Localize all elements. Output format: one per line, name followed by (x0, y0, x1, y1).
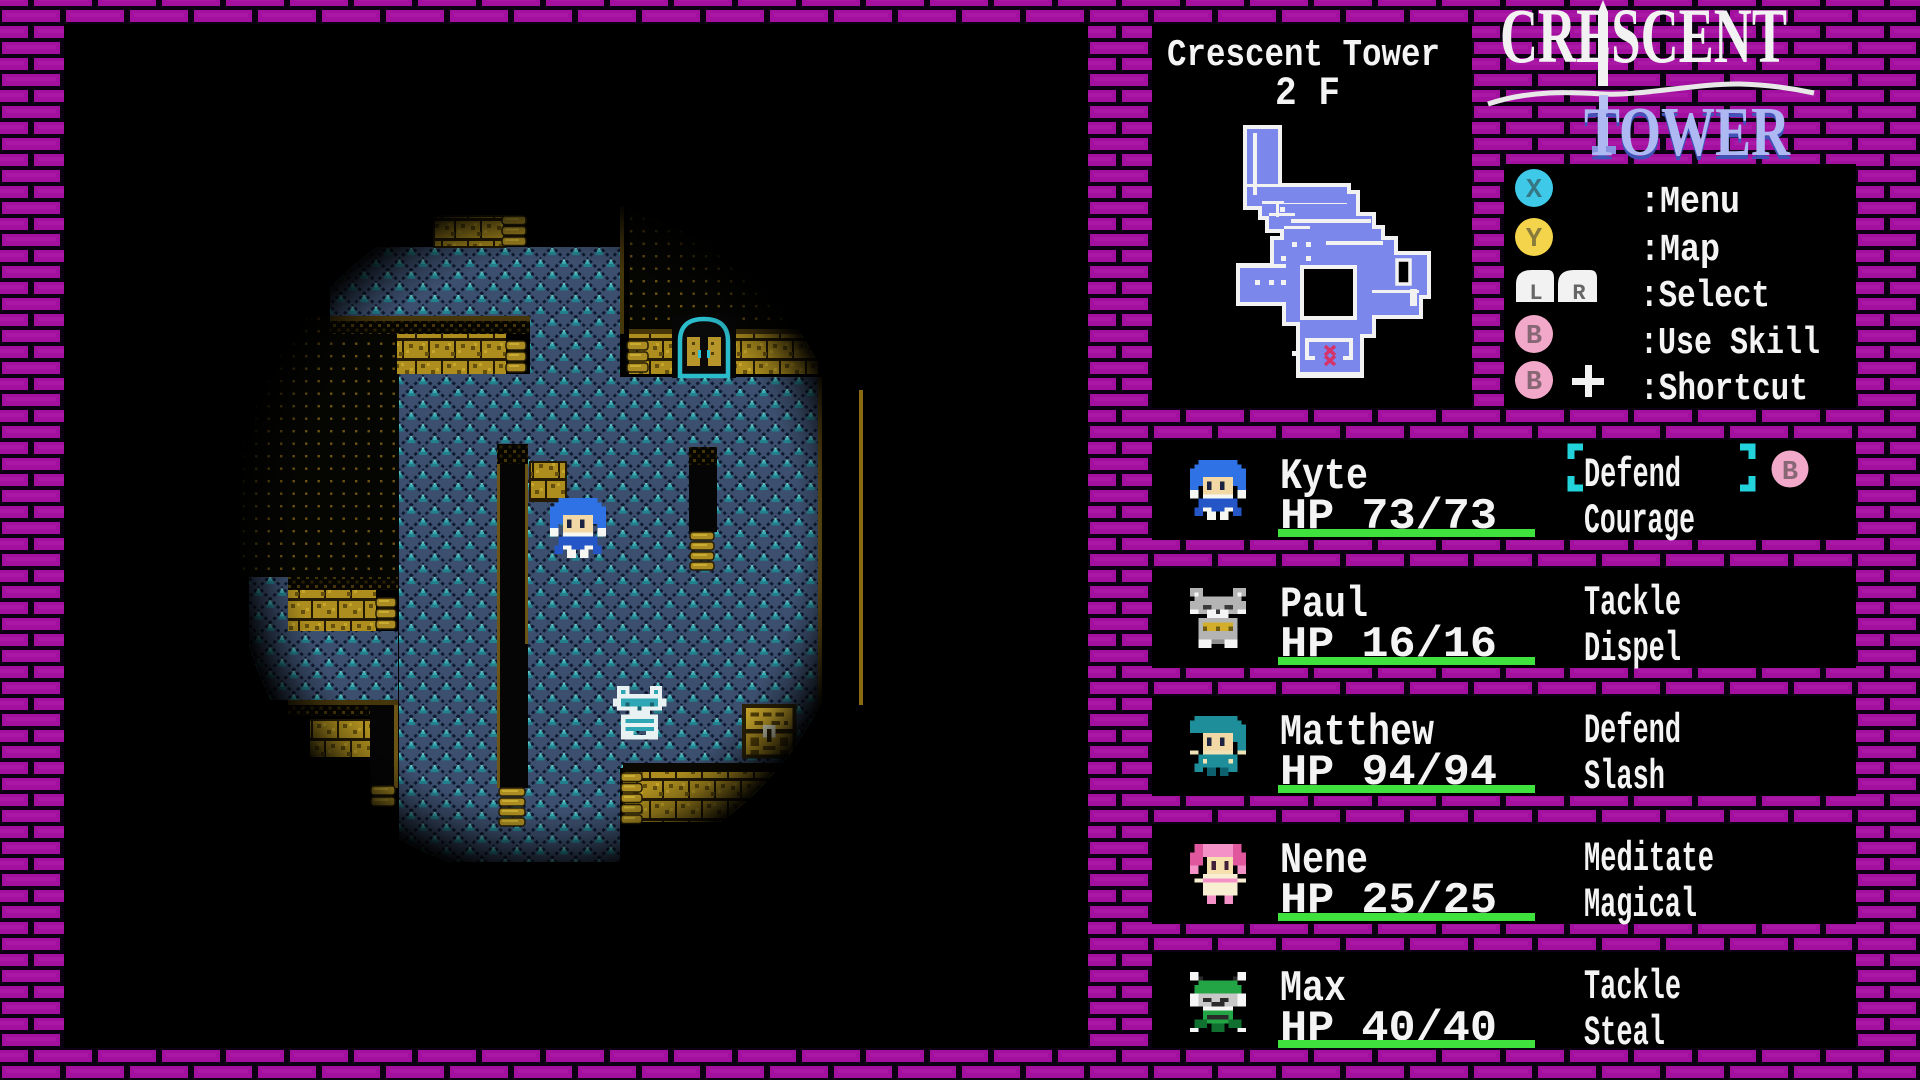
svg-text:Crescent Tower: Crescent Tower (1167, 34, 1440, 77)
svg-text::Map: :Map (1640, 229, 1720, 272)
svg-text:B: B (1526, 322, 1542, 352)
svg-text:Defend: Defend (1584, 451, 1681, 499)
svg-text:Magical: Magical (1584, 881, 1697, 929)
svg-text:CRESCENT: CRESCENT (1500, 0, 1787, 79)
svg-text::Menu: :Menu (1640, 181, 1740, 224)
svg-text::Shortcut: :Shortcut (1640, 368, 1808, 411)
svg-text:B: B (1526, 368, 1542, 398)
svg-text:Tackle: Tackle (1584, 579, 1681, 627)
svg-text:B: B (1782, 458, 1798, 488)
svg-text:X: X (1526, 176, 1543, 206)
svg-text::Use Skill: :Use Skill (1640, 322, 1820, 365)
svg-text::Select: :Select (1640, 275, 1770, 318)
svg-text:Defend: Defend (1584, 707, 1681, 755)
svg-text:Dispel: Dispel (1584, 625, 1681, 673)
svg-text:TOWER: TOWER (1584, 94, 1791, 171)
svg-text:Courage: Courage (1584, 497, 1695, 545)
svg-text:Y: Y (1526, 225, 1543, 255)
svg-text:2 F: 2 F (1275, 72, 1340, 117)
svg-text:Meditate: Meditate (1584, 835, 1714, 883)
svg-text:R: R (1572, 281, 1586, 306)
svg-text:Steal: Steal (1584, 1009, 1665, 1057)
svg-text:Tackle: Tackle (1584, 963, 1681, 1011)
svg-text:L: L (1529, 281, 1542, 306)
svg-text:Slash: Slash (1584, 753, 1665, 801)
